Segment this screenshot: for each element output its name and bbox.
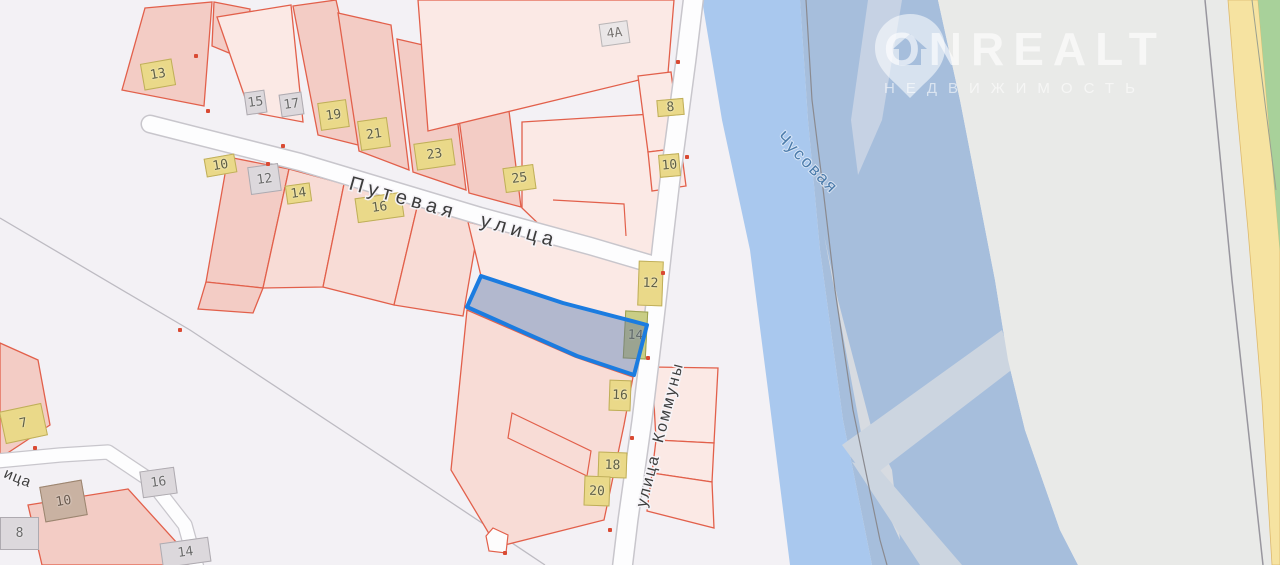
parcels[interactable]: [0, 0, 718, 565]
base-map-svg: [0, 0, 1280, 565]
map-canvas[interactable]: 131517192123254A810101214161214161820710…: [0, 0, 1280, 565]
